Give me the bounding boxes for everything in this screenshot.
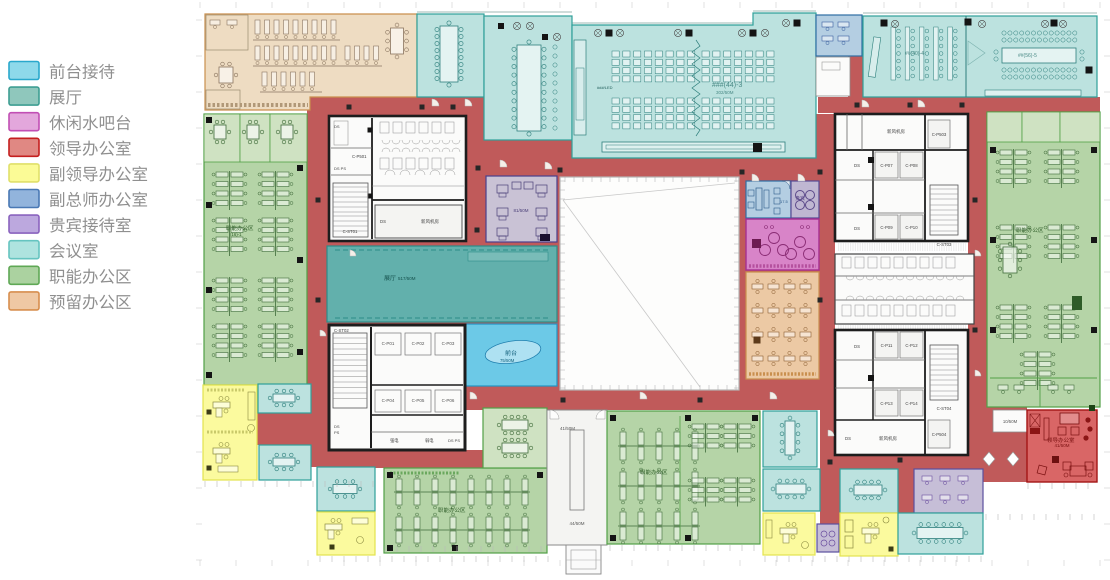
svg-text:C-P06: C-P06 (442, 398, 455, 403)
svg-text:C-P07: C-P07 (880, 163, 893, 168)
svg-text:C-P504: C-P504 (932, 432, 947, 437)
svg-text:C-P01: C-P01 (382, 341, 395, 346)
svg-text:C-P501: C-P501 (352, 154, 367, 159)
svg-text:DS PS: DS PS (334, 166, 346, 171)
svg-text:C-P13: C-P13 (880, 401, 893, 406)
svg-text:DS: DS (380, 219, 386, 224)
svg-text:C-P02: C-P02 (412, 341, 425, 346)
svg-text:C-P11: C-P11 (881, 343, 893, 348)
svg-text:75/50M: 75/50M (500, 358, 515, 363)
svg-text:41/50M: 41/50M (1054, 443, 1069, 448)
svg-text:弱电: 弱电 (425, 437, 434, 444)
svg-text:517/50M: 517/50M (398, 276, 416, 281)
svg-text:C-ST02: C-ST02 (334, 328, 349, 333)
svg-text:PS: PS (334, 430, 340, 435)
svg-text:DS: DS (854, 226, 860, 231)
svg-text:C-P03: C-P03 (442, 341, 455, 346)
svg-text:(16)-1: (16)-1 (230, 232, 242, 237)
svg-text:C-P05: C-P05 (412, 398, 425, 403)
svg-text:##(40)-4: ##(40)-4 (905, 51, 924, 57)
svg-text:##(56)-5: ##(56)-5 (1018, 53, 1037, 59)
svg-text:17.5: 17.5 (780, 199, 789, 204)
svg-text:DS: DS (334, 124, 340, 129)
svg-text:44/50M: 44/50M (569, 521, 584, 526)
svg-text:C-P08: C-P08 (905, 163, 918, 168)
svg-text:新风机房: 新风机房 (879, 435, 897, 442)
svg-text:C-ST04: C-ST04 (937, 406, 952, 411)
svg-text:DS PS: DS PS (448, 438, 460, 443)
svg-text:DS: DS (845, 436, 851, 441)
svg-text:81/50M: 81/50M (513, 208, 528, 213)
svg-text:C-P10: C-P10 (905, 225, 918, 230)
svg-text:新风机房: 新风机房 (887, 128, 905, 135)
svg-text:41/50M: 41/50M (560, 426, 575, 431)
svg-text:C-P04: C-P04 (382, 398, 395, 403)
svg-text:新风机房: 新风机房 (421, 218, 439, 225)
svg-text:302/50M: 302/50M (716, 90, 734, 95)
svg-text:DS: DS (854, 163, 860, 168)
svg-text:C-P14: C-P14 (905, 401, 918, 406)
svg-text:C-ST01: C-ST01 (343, 229, 358, 234)
svg-text:C-P12: C-P12 (905, 343, 918, 348)
svg-text:DS: DS (854, 344, 860, 349)
svg-text:C-ST03: C-ST03 (937, 242, 952, 247)
svg-text:10/50M: 10/50M (1003, 419, 1018, 424)
svg-text:###/LED: ###/LED (597, 85, 613, 90)
svg-text:C-P503: C-P503 (932, 132, 947, 137)
svg-text:强电: 强电 (390, 437, 399, 444)
svg-text:###(44)-3: ###(44)-3 (712, 82, 742, 89)
svg-text:DS: DS (334, 424, 340, 429)
svg-text:C-P09: C-P09 (880, 225, 893, 230)
